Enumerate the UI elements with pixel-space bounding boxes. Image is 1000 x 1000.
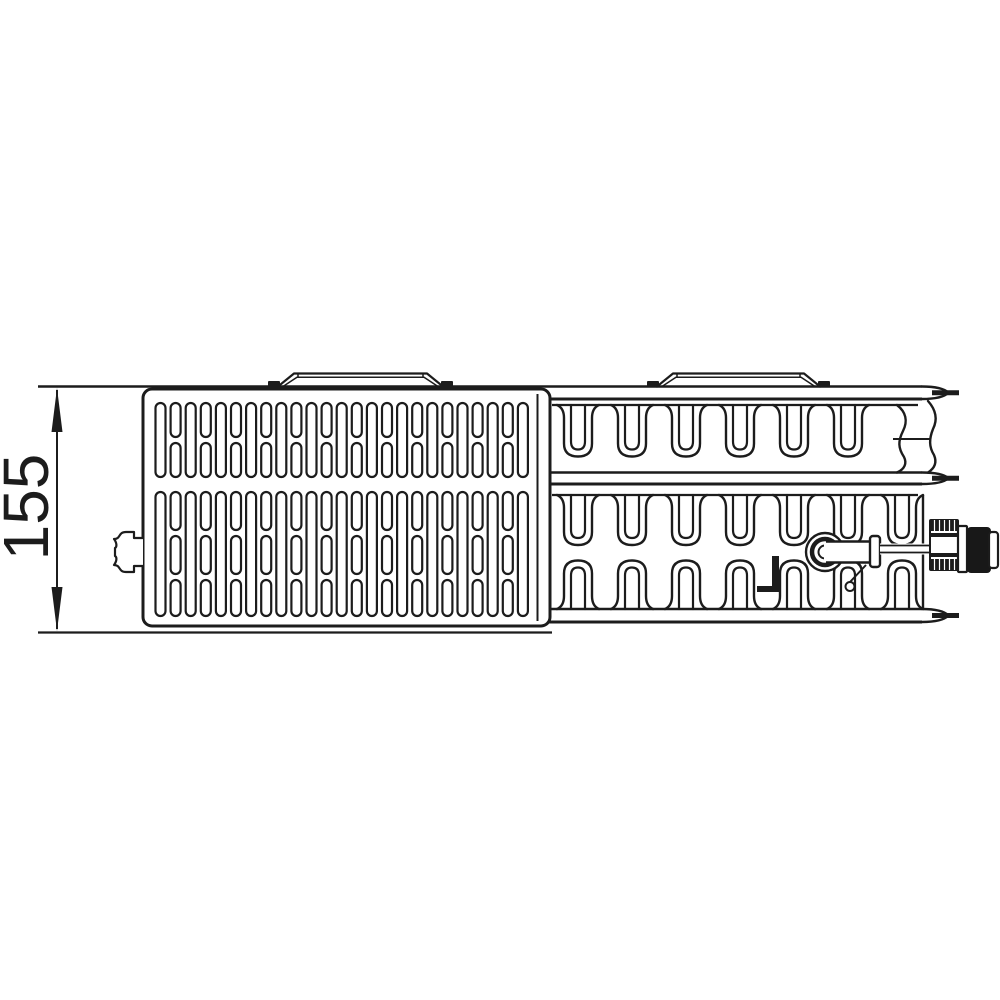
radiator-diagram: 155 bbox=[0, 0, 1000, 1000]
grille-panel bbox=[114, 389, 550, 626]
radiator-technical-drawing-page: 155 bbox=[0, 0, 1000, 1000]
convector-fins bbox=[557, 401, 936, 609]
mounting-brackets bbox=[268, 374, 830, 387]
dimension-label: 155 bbox=[0, 454, 62, 561]
